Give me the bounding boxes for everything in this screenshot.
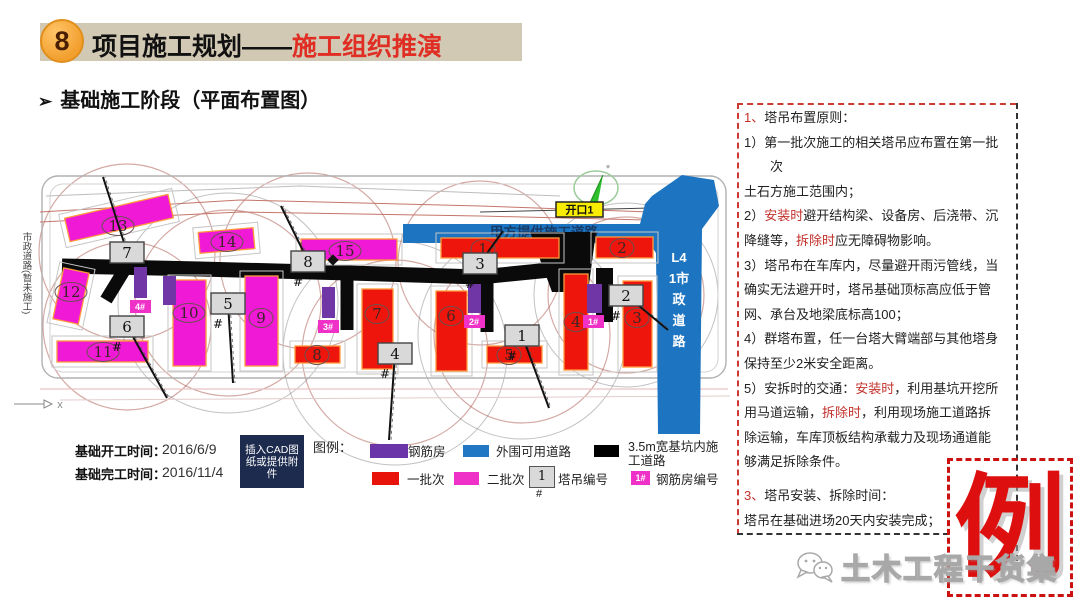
panel-text: 降缝等，: [744, 233, 796, 248]
building-number-9: 9: [256, 309, 266, 327]
panel-highlight-text: 拆除时: [796, 233, 835, 248]
axis-arrow-icon: [44, 400, 52, 408]
panel-line: 保持至少2米安全距离。: [744, 352, 1016, 377]
start-date-value: 2016/6/9: [162, 441, 217, 457]
rebar-house-number: 4#: [135, 302, 145, 312]
building-number-10: 10: [179, 304, 198, 322]
crane-number-8: 8: [303, 253, 313, 271]
panel-text: ，利用现场施工道路拆: [861, 405, 991, 420]
panel-line: 1）第一批次施工的相关塔吊应布置在第一批: [744, 131, 1016, 156]
panel-border-top: [737, 103, 1016, 105]
panel-text: 4）群塔布置，任一台塔大臂端部与其他塔身: [744, 331, 998, 346]
panel-line: 用马道运输，拆除时，利用现场施工道路拆: [744, 401, 1016, 426]
panel-text: 保持至少2米安全距离。: [744, 356, 881, 371]
building-number-12: 12: [61, 283, 80, 301]
panel-text: 除运输，车库顶板结构承载力及现场通道能: [744, 430, 991, 445]
legend-crane-hash: #: [536, 488, 542, 500]
rebar-house-number: 2#: [469, 317, 479, 327]
legend-label-rebar-house: 钢筋房: [408, 441, 446, 460]
cad-placeholder-text: 插入CAD图纸或提供附件: [241, 444, 303, 480]
rebar-house-number: 3#: [323, 322, 333, 332]
cad-placeholder-box: 插入CAD图纸或提供附件: [240, 435, 304, 488]
legend-label-batch2: 二批次: [487, 469, 525, 488]
panel-line: 除运输，车库顶板结构承载力及现场通道能: [744, 426, 1016, 451]
panel-line: 次: [744, 155, 1016, 180]
building-number-4: 4: [571, 313, 581, 331]
building-magenta-10: [173, 280, 206, 366]
panel-highlight-text: 安装时: [855, 381, 894, 396]
panel-text: 5）安拆时的交通：: [744, 381, 855, 396]
start-date-label: 基础开工时间：: [75, 441, 166, 460]
panel-border-left: [737, 103, 739, 535]
side-road-label: 市政道路(暂未施工): [21, 231, 33, 314]
legend-label-rebar-number: 钢筋房编号: [656, 469, 719, 488]
end-date-value: 2016/11/4: [162, 464, 223, 480]
building-number-6: 6: [446, 307, 456, 325]
building-number-7: 7: [372, 305, 382, 323]
panel-text: 用马道运输，: [744, 405, 822, 420]
panel-text: ，利用基坑开挖所: [894, 381, 998, 396]
panel-text: 3）塔吊布在车库内，尽量避开雨污管线，当: [744, 258, 998, 273]
building-number-14: 14: [217, 233, 236, 251]
crane-hash: #: [112, 340, 122, 354]
panel-text: 土石方施工范围内；: [744, 184, 861, 199]
slide: { "header": {"number": "8", "title_black…: [0, 0, 1080, 608]
panel-line: 2）安装时避开结构梁、设备房、后浇带、沉: [744, 204, 1016, 229]
building-red-6: [436, 291, 467, 371]
panel-text: 确实无法避开时，塔吊基础顶标高应低于管: [744, 282, 991, 297]
watermark-text: 土木工程干货集: [841, 546, 1058, 588]
contour-line: [46, 186, 560, 196]
crane-number-5: 5: [223, 295, 233, 313]
panel-highlight-text: 3、: [744, 488, 764, 503]
legend-label-pit-road: 3.5m宽基坑内施工道路: [628, 440, 728, 468]
crane-hash: #: [293, 275, 303, 289]
panel-text: 够满足拆除条件。: [744, 454, 848, 469]
panel-line: 1、塔吊布置原则：: [744, 106, 1016, 131]
panel-text: 塔吊布置原则：: [764, 110, 855, 125]
panel-text: 塔吊在基础进场20天内安装完成；: [744, 513, 940, 528]
building-number-8: 8: [312, 346, 322, 364]
rebar-house-number: 1#: [588, 317, 598, 327]
panel-border-bottom: [737, 533, 949, 535]
rebar-house: [322, 287, 335, 318]
panel-line: 3）塔吊布在车库内，尽量避开雨污管线，当: [744, 254, 1016, 279]
bottom-line: [60, 396, 730, 400]
crane-number-2: 2: [621, 287, 631, 305]
panel-line: 土石方施工范围内；: [744, 180, 1016, 205]
compass-mark: *: [606, 163, 611, 175]
legend-title: 图例：: [313, 437, 352, 456]
opening-label: 开口1: [565, 204, 593, 217]
crane-hash: #: [507, 349, 517, 363]
panel-line: 降缝等，拆除时应无障碍物影响。: [744, 229, 1016, 254]
crane-hash: #: [611, 309, 621, 323]
building-number-2: 2: [617, 239, 627, 257]
legend-swatch-outer-road: [463, 445, 489, 457]
wechat-icon: [795, 550, 835, 584]
axis-label: x: [57, 399, 63, 411]
legend-swatch-batch1: [372, 472, 399, 485]
panel-text: 2）: [744, 208, 764, 223]
panel-text: 避开结构梁、设备房、后浇带、沉: [803, 208, 998, 223]
crane-hash: #: [380, 367, 390, 381]
panel-highlight-text: 1、: [744, 110, 764, 125]
panel-text: 应无障碍物影响。: [835, 233, 939, 248]
crane-number-1: 1: [517, 327, 527, 345]
crane-number-6: 6: [122, 318, 132, 336]
panel-highlight-text: 安装时: [764, 208, 803, 223]
crane-hash: #: [213, 317, 223, 331]
panel-line: 网、承台及地梁底标高100；: [744, 303, 1016, 328]
panel-text: 网、承台及地梁底标高100；: [744, 307, 909, 322]
panel-text: 塔吊安装、拆除时间：: [764, 488, 894, 503]
panel-line: 确实无法避开时，塔吊基础顶标高应低于管: [744, 278, 1016, 303]
watermark: 土木工程干货集: [795, 546, 1058, 588]
panel-text: 次: [744, 159, 783, 174]
panel-line: 4）群塔布置，任一台塔大臂端部与其他塔身: [744, 327, 1016, 352]
legend-label-crane-number: 塔吊编号: [558, 469, 608, 488]
end-date-label: 基础完工时间：: [75, 464, 166, 483]
legend-swatch-batch2: [454, 472, 479, 485]
rebar-house: [587, 284, 602, 313]
building-red-1: [441, 238, 559, 258]
crane-number-7: 7: [122, 244, 132, 262]
crane-number-4: 4: [390, 345, 400, 363]
rebar-house: [163, 276, 176, 305]
crane-hash: #: [465, 277, 475, 291]
panel-highlight-text: 拆除时: [822, 405, 861, 420]
building-number-15: 15: [335, 242, 354, 260]
building-number-3: 3: [632, 309, 642, 327]
legend-label-outer-road: 外围可用道路: [496, 441, 571, 460]
rebar-house: [134, 267, 147, 298]
legend-swatch-pit-road: [594, 445, 619, 457]
panel-line: 5）安拆时的交通：安装时，利用基坑开挖所: [744, 377, 1016, 402]
legend-rebar-number-box: 1#: [631, 471, 650, 485]
building-number-11: 11: [93, 343, 112, 361]
legend-swatch-rebar-house: [370, 444, 408, 458]
legend-crane-number-box: 1: [529, 466, 555, 488]
legend-label-batch1: 一批次: [407, 469, 445, 488]
crane-number-3: 3: [475, 255, 485, 273]
panel-text: 1）第一批次施工的相关塔吊应布置在第一批: [744, 135, 998, 150]
